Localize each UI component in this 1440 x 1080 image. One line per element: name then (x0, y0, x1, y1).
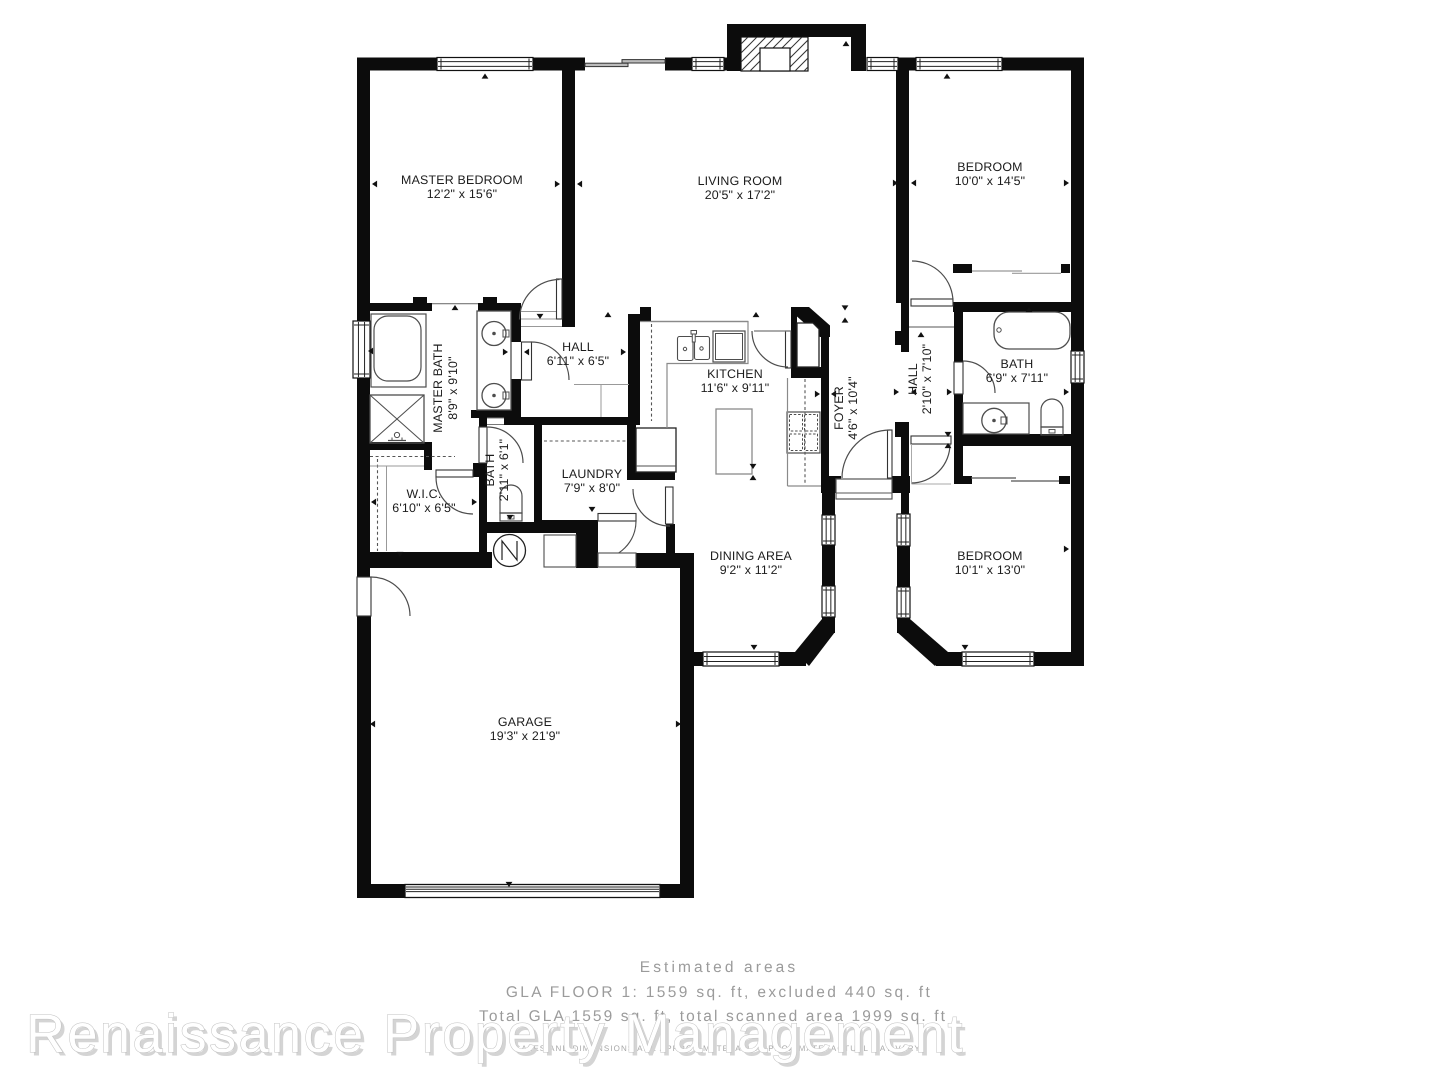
svg-text:6'9" x 7'11": 6'9" x 7'11" (986, 371, 1049, 385)
svg-text:Renaissance Property Managemen: Renaissance Property Management (26, 1004, 965, 1064)
svg-text:MASTER BEDROOM: MASTER BEDROOM (401, 173, 523, 187)
svg-text:Estimated areas: Estimated areas (640, 959, 799, 976)
svg-text:HALL: HALL (906, 363, 920, 395)
svg-text:10'1" x 13'0": 10'1" x 13'0" (955, 563, 1026, 577)
svg-text:W.I.C.: W.I.C. (407, 487, 442, 501)
svg-text:FOYER: FOYER (832, 386, 846, 430)
svg-text:19'3" x 21'9": 19'3" x 21'9" (490, 729, 561, 743)
svg-text:2'11" x 6'1": 2'11" x 6'1" (497, 439, 511, 502)
svg-text:DINING AREA: DINING AREA (710, 549, 793, 563)
svg-text:8'9" x 9'10": 8'9" x 9'10" (446, 356, 460, 419)
svg-text:2'10" x 7'10": 2'10" x 7'10" (920, 344, 934, 415)
svg-text:LIVING ROOM: LIVING ROOM (698, 174, 783, 188)
svg-text:6'11" x 6'5": 6'11" x 6'5" (547, 354, 610, 368)
svg-text:HALL: HALL (562, 340, 594, 354)
svg-text:BEDROOM: BEDROOM (957, 160, 1022, 174)
svg-text:GLA FLOOR 1: 1559 sq. ft, excl: GLA FLOOR 1: 1559 sq. ft, excluded 440 s… (506, 984, 932, 1001)
svg-text:BATH: BATH (483, 454, 497, 487)
svg-text:11'6" x 9'11": 11'6" x 9'11" (701, 381, 770, 395)
svg-text:BEDROOM: BEDROOM (957, 549, 1022, 563)
svg-text:7'9" x 8'0": 7'9" x 8'0" (564, 481, 620, 495)
svg-text:12'2" x 15'6": 12'2" x 15'6" (427, 187, 498, 201)
svg-text:6'10" x 6'5": 6'10" x 6'5" (392, 501, 455, 515)
svg-text:GARAGE: GARAGE (498, 715, 552, 729)
svg-text:20'5" x 17'2": 20'5" x 17'2" (705, 188, 776, 202)
svg-text:10'0" x 14'5": 10'0" x 14'5" (955, 174, 1026, 188)
svg-text:MASTER BATH: MASTER BATH (431, 343, 445, 432)
svg-text:KITCHEN: KITCHEN (707, 367, 763, 381)
svg-text:4'6" x 10'4": 4'6" x 10'4" (846, 376, 860, 439)
svg-text:BATH: BATH (1001, 357, 1034, 371)
svg-text:LAUNDRY: LAUNDRY (562, 467, 622, 481)
svg-text:9'2" x 11'2": 9'2" x 11'2" (720, 563, 783, 577)
